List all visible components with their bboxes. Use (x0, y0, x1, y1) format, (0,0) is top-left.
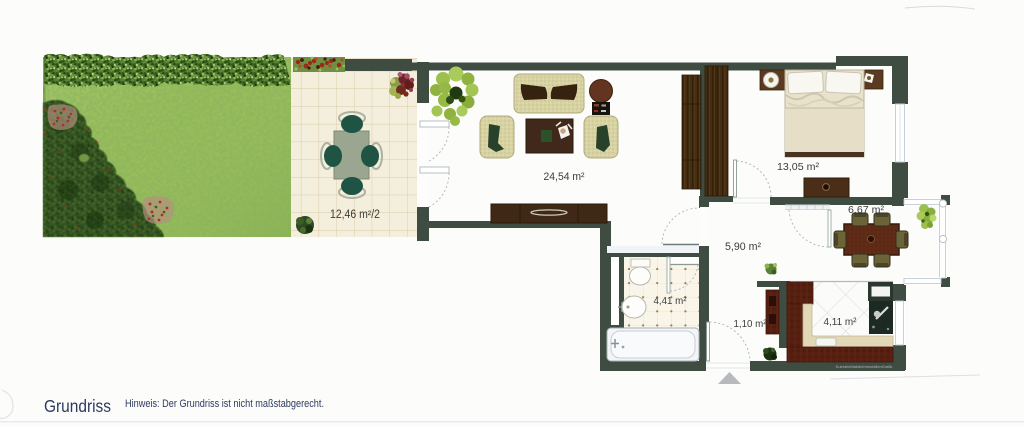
svg-text:Grundriss: Grundriss (44, 396, 111, 416)
svg-text:24,54 m²: 24,54 m² (544, 171, 585, 183)
svg-text:Hinweis: Der Grundriss ist nic: Hinweis: Der Grundriss ist nicht maßstab… (125, 398, 324, 410)
svg-text:1,10 m²: 1,10 m² (734, 318, 767, 330)
svg-text:4,11 m²: 4,11 m² (824, 316, 857, 328)
svg-text:12,46 m²/2: 12,46 m²/2 (330, 209, 380, 221)
svg-text:13,05 m²: 13,05 m² (777, 161, 820, 173)
svg-text:KuestenMaklerImmobilienGrafik: KuestenMaklerImmobilienGrafik (836, 364, 893, 369)
svg-text:5,90 m²: 5,90 m² (725, 241, 761, 253)
svg-text:4,41 m²: 4,41 m² (654, 295, 687, 307)
svg-text:6,67 m²: 6,67 m² (848, 204, 884, 216)
